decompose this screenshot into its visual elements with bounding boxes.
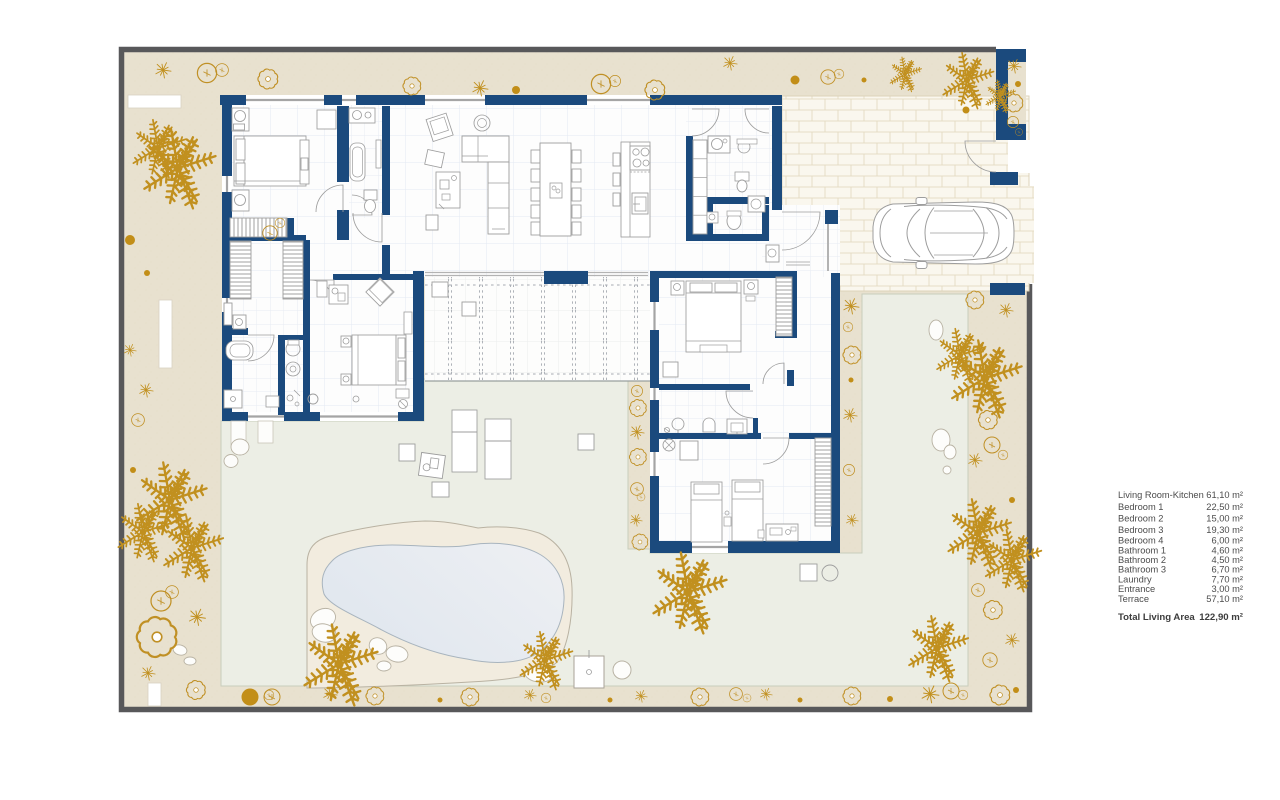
svg-text:Bedroom 4: Bedroom 4 [1118,536,1163,546]
svg-text:4,60 m²: 4,60 m² [1211,546,1243,556]
svg-text:Total Living Area: Total Living Area [1118,612,1195,623]
svg-text:Bedroom 1: Bedroom 1 [1118,502,1163,512]
svg-text:Bedroom 2: Bedroom 2 [1118,514,1163,524]
svg-text:3,00 m²: 3,00 m² [1211,584,1243,594]
svg-text:7,70 m²: 7,70 m² [1211,575,1243,585]
svg-text:6,00 m²: 6,00 m² [1211,536,1243,546]
svg-text:Laundry: Laundry [1118,575,1152,585]
svg-text:61,10 m²: 61,10 m² [1206,490,1243,500]
svg-text:122,90 m²: 122,90 m² [1199,612,1243,623]
svg-text:Bathroom 3: Bathroom 3 [1118,565,1166,575]
svg-text:Living Room-Kitchen: Living Room-Kitchen [1118,490,1204,500]
svg-text:15,00 m²: 15,00 m² [1206,514,1243,524]
svg-text:6,70 m²: 6,70 m² [1211,565,1243,575]
svg-text:Bedroom 3: Bedroom 3 [1118,525,1163,535]
svg-text:Terrace: Terrace [1118,594,1149,604]
svg-text:22,50 m²: 22,50 m² [1206,502,1243,512]
svg-text:Entrance: Entrance [1118,584,1155,594]
svg-text:Bathroom 2: Bathroom 2 [1118,555,1166,565]
svg-text:4,50 m²: 4,50 m² [1211,555,1243,565]
svg-text:57,10 m²: 57,10 m² [1206,594,1243,604]
svg-text:Bathroom 1: Bathroom 1 [1118,546,1166,556]
svg-text:19,30 m²: 19,30 m² [1206,525,1243,535]
